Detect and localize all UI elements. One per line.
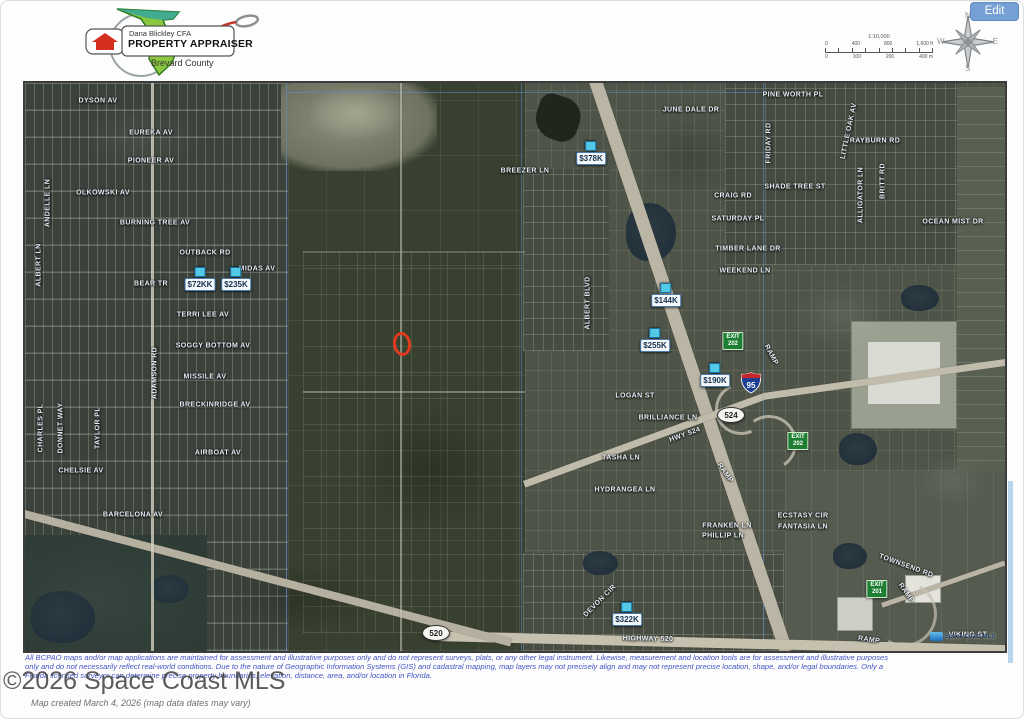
mls-copyright: ©2026 Space Coast MLS xyxy=(3,667,285,696)
scale-ratio: 1:10,000 xyxy=(825,34,933,40)
street-label: TASHA LN xyxy=(602,455,640,462)
street-label: WEEKEND LN xyxy=(719,268,770,275)
listing-pin-icon xyxy=(649,328,660,338)
price-label: $322K xyxy=(612,613,642,626)
price-marker[interactable]: $255K xyxy=(640,328,670,352)
street-label: ADAMSON RD xyxy=(152,347,159,399)
edge-highlight xyxy=(1008,481,1013,663)
street-label: SATURDAY PL xyxy=(712,216,765,223)
exit-sign-number: 202 xyxy=(726,341,739,348)
appraiser-title: PROPERTY APPRAISER xyxy=(128,38,253,50)
street-label: HYDRANGEA LN xyxy=(595,487,656,494)
street-label: RAMP xyxy=(716,462,734,484)
scale-bar: 1:10,000 0 400 800 1,600 ft 0 100 200 40… xyxy=(825,34,933,60)
street-label: BURNING TREE AV xyxy=(120,220,190,227)
listing-pin-icon xyxy=(195,267,206,277)
scale-tick: 100 xyxy=(853,54,861,60)
street-label: PINE WORTH PL xyxy=(763,92,824,99)
price-label: $72KK xyxy=(185,278,216,291)
price-marker[interactable]: $72KK xyxy=(185,267,216,291)
street-label: CHARLES PL xyxy=(38,404,45,453)
street-label: TAYLOR PL xyxy=(95,407,102,449)
street-label: HIGHWAY 520 xyxy=(623,635,674,643)
street-label: BEAR TR xyxy=(134,281,168,288)
street-label: FANTASIA LN xyxy=(778,524,828,531)
mls-watermark: Space Coast MLS xyxy=(930,632,995,641)
disclaimer-line: All BCPAO maps and/or map applications a… xyxy=(25,653,1001,662)
scale-tick: 400 m xyxy=(919,54,933,60)
street-label: RAMP xyxy=(858,635,881,645)
listing-pin-icon xyxy=(660,283,671,293)
scale-tick: 0 xyxy=(825,54,828,60)
street-label: RAMP xyxy=(763,344,780,367)
price-label: $255K xyxy=(640,339,670,352)
map-canvas[interactable]: DYSON AVEUREKA AVPIONEER AVOLKOWSKI AVBU… xyxy=(23,81,1007,653)
street-label: TERRI LEE AV xyxy=(177,312,229,319)
scale-tick: 800 xyxy=(884,41,892,47)
exit-sign-word: EXIT xyxy=(791,434,804,441)
street-label: FRANKEN LN xyxy=(702,523,752,530)
street-label: FRIDAY RD xyxy=(766,123,773,164)
subject-property-marker xyxy=(391,331,412,357)
street-label: LITTLE OAK AV xyxy=(840,102,859,160)
street-label: RAYBURN RD xyxy=(850,138,900,145)
svg-text:95: 95 xyxy=(747,381,756,390)
street-label: BREEZER LN xyxy=(501,168,550,175)
appraiser-county: Brevard County xyxy=(151,58,214,68)
exit-sign: EXIT202 xyxy=(722,332,743,350)
price-marker[interactable]: $235K xyxy=(221,267,251,291)
street-label: CRAIG RD xyxy=(714,193,752,200)
appraiser-name: Dana Blickley CFA xyxy=(129,29,191,38)
street-label: PHILLIP LN xyxy=(702,533,744,540)
exit-sign: EXIT201 xyxy=(866,580,887,598)
street-label: RAMP xyxy=(897,582,915,604)
street-label: ECSTASY CIR xyxy=(778,513,829,520)
compass-w: W xyxy=(937,37,945,46)
scale-tick: 0 xyxy=(825,41,828,47)
exit-sign-number: 201 xyxy=(870,589,883,596)
street-label: PIONEER AV xyxy=(128,158,174,165)
street-label: ANDELLE LN xyxy=(45,179,52,227)
street-label: OLKOWSKI AV xyxy=(76,190,130,197)
page: Dana Blickley CFA PROPERTY APPRAISER Bre… xyxy=(0,0,1024,719)
street-label: TIMBER LANE DR xyxy=(715,246,781,253)
street-label: AIRBOAT AV xyxy=(195,450,241,457)
street-label: DONNET WAY xyxy=(58,403,65,454)
mls-wave-icon xyxy=(930,632,943,641)
street-label: OUTBACK RD xyxy=(179,250,230,257)
street-label: ALBERT BLVD xyxy=(585,276,592,329)
street-label: LOGAN ST xyxy=(615,393,654,400)
scale-tick: 200 xyxy=(886,54,894,60)
street-label: BRILLIANCE LN xyxy=(639,415,698,422)
mls-watermark-text: Space Coast MLS xyxy=(945,634,995,640)
listing-pin-icon xyxy=(709,363,720,373)
street-label: CHELSIE AV xyxy=(58,468,103,475)
interstate-95-shield: 95 xyxy=(741,372,761,394)
street-label: BRITT RD xyxy=(880,163,887,199)
street-label: MISSILE AV xyxy=(184,374,227,381)
exit-sign-number: 202 xyxy=(791,441,804,448)
exit-sign: EXIT202 xyxy=(787,432,808,450)
compass-n: N xyxy=(965,11,971,20)
street-label: DYSON AV xyxy=(79,98,118,105)
street-label: TOWNSEND RD xyxy=(878,553,934,579)
price-marker[interactable]: $322K xyxy=(612,602,642,626)
street-label: JUNE DALE DR xyxy=(663,107,720,114)
street-label: SOGGY BOTTOM AV xyxy=(176,343,251,350)
street-label: OCEAN MIST DR xyxy=(922,219,983,226)
route-shield: 524 xyxy=(717,407,745,423)
scale-ticks xyxy=(825,48,933,53)
price-marker[interactable]: $190K xyxy=(700,363,730,387)
exit-sign-word: EXIT xyxy=(870,582,883,589)
price-label: $144K xyxy=(651,294,681,307)
price-marker[interactable]: $144K xyxy=(651,283,681,307)
street-label: EUREKA AV xyxy=(129,130,173,137)
street-label: BARCELONA AV xyxy=(103,512,163,519)
listing-pin-icon xyxy=(585,141,596,151)
price-label: $235K xyxy=(221,278,251,291)
exit-sign-word: EXIT xyxy=(726,334,739,341)
listing-pin-icon xyxy=(621,602,632,612)
compass-e: E xyxy=(993,37,998,46)
price-label: $190K xyxy=(700,374,730,387)
scale-tick: 400 xyxy=(852,41,860,47)
street-label: ALLIGATOR LN xyxy=(858,167,865,223)
listing-pin-icon xyxy=(230,267,241,277)
compass-rose-icon: N E S W xyxy=(939,13,997,71)
scale-tick: 1,600 ft xyxy=(916,41,933,47)
compass-s: S xyxy=(965,64,970,73)
street-label: ALBERT LN xyxy=(36,243,43,286)
map-created-note: Map created March 4, 2026 (map data date… xyxy=(31,698,251,708)
street-label: BRECKINRIDGE AV xyxy=(180,402,251,409)
route-shield: 520 xyxy=(422,625,450,641)
street-label: HWY 524 xyxy=(668,426,701,444)
street-label: SHADE TREE ST xyxy=(764,184,825,191)
price-label: $378K xyxy=(576,152,606,165)
price-marker[interactable]: $378K xyxy=(576,141,606,165)
